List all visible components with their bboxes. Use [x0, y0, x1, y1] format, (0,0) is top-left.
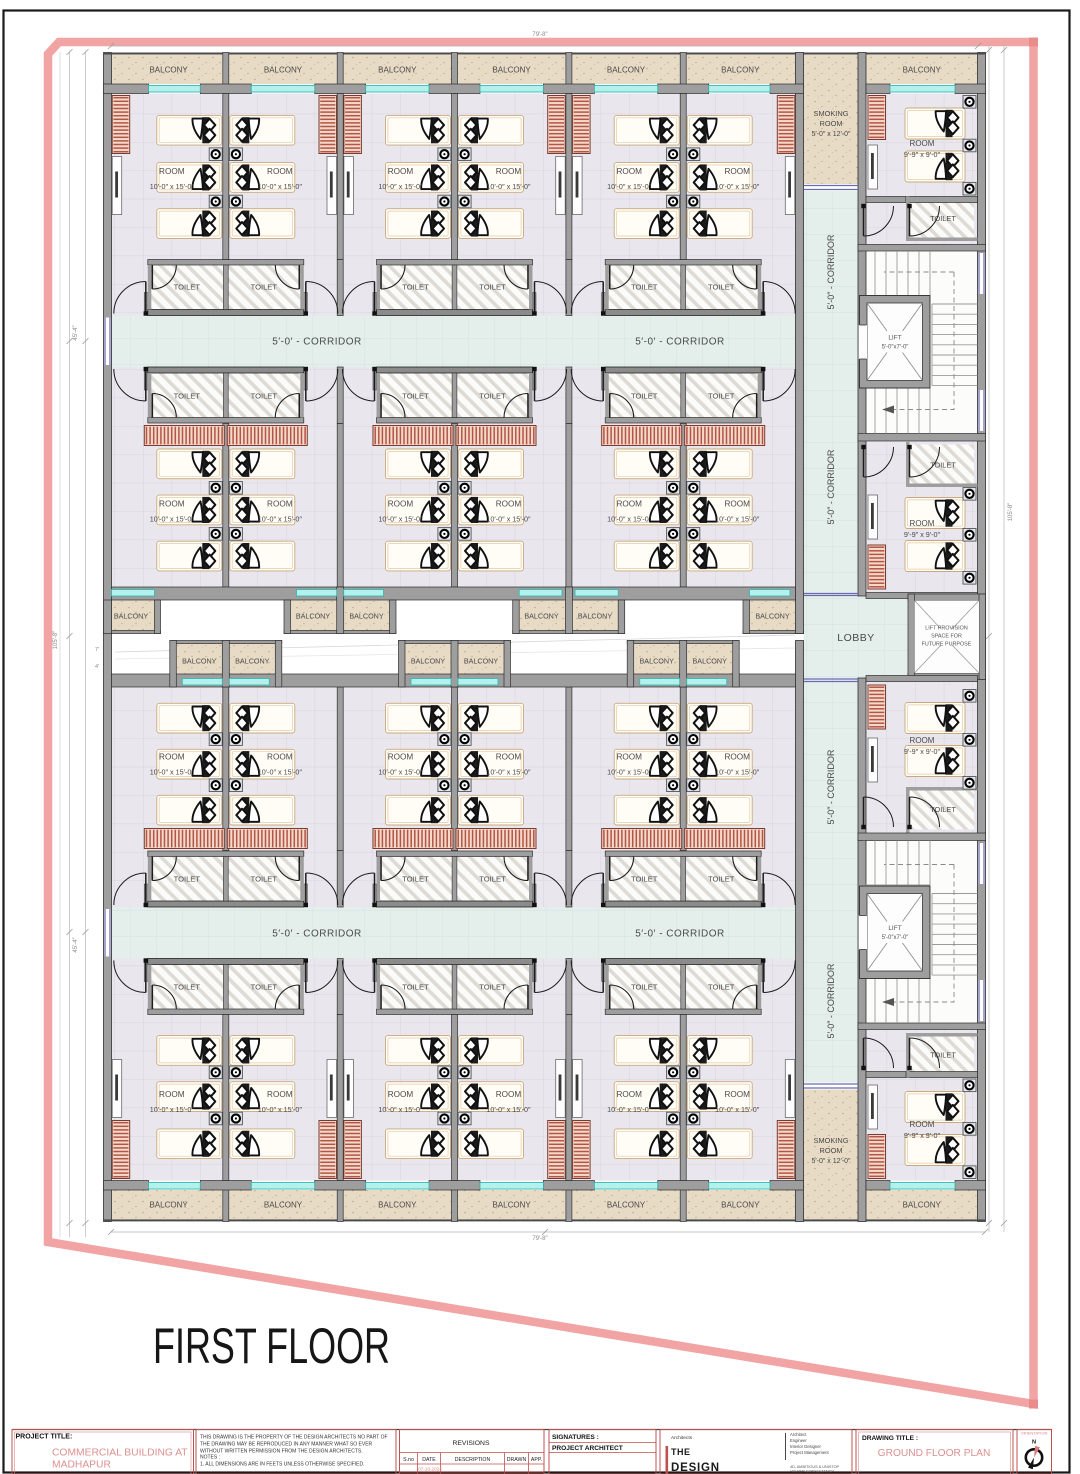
svg-text:TOILET: TOILET [708, 875, 735, 884]
svg-text:5′-0″ x 12′-0″: 5′-0″ x 12′-0″ [811, 1158, 851, 1165]
svg-text:ROOM: ROOM [496, 167, 522, 176]
svg-text:5′-0″ x 12′-0″: 5′-0″ x 12′-0″ [811, 131, 851, 138]
svg-text:FIRST FLOOR: FIRST FLOOR [153, 1318, 390, 1374]
svg-text:TOILET: TOILET [930, 461, 956, 470]
svg-text:DATE: DATE [422, 1457, 436, 1463]
svg-text:ROOM: ROOM [388, 167, 414, 176]
svg-text:ROOM: ROOM [496, 1090, 522, 1099]
svg-text:Project Management: Project Management [790, 1450, 829, 1455]
svg-text:ROOM: ROOM [388, 753, 414, 762]
svg-text:79′-8″: 79′-8″ [532, 32, 548, 38]
svg-text:BALCONY: BALCONY [755, 612, 790, 621]
svg-text:TOILET: TOILET [402, 983, 429, 992]
svg-text:SMOKING: SMOKING [814, 109, 849, 118]
svg-text:10′-0″ x 15′-0″: 10′-0″ x 15′-0″ [607, 1105, 652, 1114]
svg-text:S.no: S.no [403, 1457, 414, 1463]
svg-text:TOILET: TOILET [402, 875, 429, 884]
svg-text:ROOM: ROOM [910, 139, 935, 148]
svg-text:ROOM: ROOM [820, 1146, 843, 1155]
svg-text:BALCONY: BALCONY [264, 1201, 303, 1210]
svg-text:TOILET: TOILET [251, 983, 278, 992]
svg-text:9′-9″ x 9′-0″: 9′-9″ x 9′-0″ [904, 150, 941, 159]
svg-text:Architects: Architects [671, 1435, 693, 1441]
svg-text:BALCONY: BALCONY [693, 657, 728, 666]
svg-text:TOILET: TOILET [631, 392, 658, 401]
svg-text:5′-0′ - CORRIDOR: 5′-0′ - CORRIDOR [635, 929, 725, 940]
svg-text:TOILET: TOILET [251, 392, 278, 401]
svg-text:BALCONY: BALCONY [903, 1201, 942, 1210]
svg-text:4D, AMBITIOUS & UNISTOP: 4D, AMBITIOUS & UNISTOP [790, 1465, 840, 1469]
svg-text:10′-0″ x 15′-0″: 10′-0″ x 15′-0″ [607, 768, 652, 777]
svg-text:10′-0″ x 15′-0″: 10′-0″ x 15′-0″ [378, 515, 423, 524]
svg-text:10′-0″ x 15′-0″: 10′-0″ x 15′-0″ [258, 768, 303, 777]
svg-text:79′-8″: 79′-8″ [532, 1236, 548, 1242]
svg-text:BALCONY: BALCONY [721, 1201, 760, 1210]
svg-text:ROOM: ROOM [616, 1090, 642, 1099]
svg-text:ROOM: ROOM [267, 1090, 293, 1099]
svg-text:TOILET: TOILET [479, 983, 506, 992]
svg-text:105′-8″: 105′-8″ [1008, 502, 1014, 521]
svg-text:FUTURE PURPOSE: FUTURE PURPOSE [922, 642, 972, 648]
svg-text:THIS DRAWING IS THE PROPERTY O: THIS DRAWING IS THE PROPERTY OF THE DESI… [200, 1435, 388, 1441]
svg-text:5′-0″x7′-0″: 5′-0″x7′-0″ [882, 345, 910, 351]
svg-text:5′-0″ - CORRIDOR: 5′-0″ - CORRIDOR [826, 449, 836, 524]
svg-text:BALCONY: BALCONY [524, 612, 559, 621]
svg-text:TOILET: TOILET [708, 283, 735, 292]
svg-text:10′-0″ x 15′-0″: 10′-0″ x 15′-0″ [150, 182, 195, 191]
svg-text:10′-0″ x 15′-0″: 10′-0″ x 15′-0″ [150, 768, 195, 777]
svg-text:BALCONY: BALCONY [149, 66, 188, 75]
svg-text:5′-0″ - CORRIDOR: 5′-0″ - CORRIDOR [826, 963, 836, 1038]
svg-text:LIFT PROVISION: LIFT PROVISION [925, 626, 968, 632]
svg-text:DESIGN: DESIGN [671, 1462, 720, 1474]
svg-text:Engineer: Engineer [790, 1438, 807, 1443]
svg-text:45′-4″: 45′-4″ [73, 936, 79, 952]
svg-text:ROOM: ROOM [820, 119, 843, 128]
svg-text:PROJECT TITLE:: PROJECT TITLE: [16, 1434, 73, 1441]
svg-text:Interior Designer: Interior Designer [790, 1444, 822, 1449]
svg-text:THE: THE [671, 1447, 691, 1457]
svg-text:105′-8″: 105′-8″ [53, 630, 59, 649]
svg-text:ROOM: ROOM [616, 500, 642, 509]
svg-text:BALCONY: BALCONY [607, 1201, 646, 1210]
svg-text:10′-0″ x 15′-0″: 10′-0″ x 15′-0″ [607, 515, 652, 524]
svg-text:PROJECT ARCHITECT: PROJECT ARCHITECT [552, 1445, 623, 1452]
svg-text:10′-0″ x 15′-0″: 10′-0″ x 15′-0″ [258, 1105, 303, 1114]
svg-text:DRAWN: DRAWN [507, 1457, 527, 1463]
svg-text:ROOM: ROOM [724, 167, 750, 176]
svg-text:ROOM: ROOM [159, 500, 185, 509]
svg-text:TOILET: TOILET [479, 283, 506, 292]
svg-text:BALCONY: BALCONY [464, 657, 499, 666]
svg-text:TOILET: TOILET [174, 283, 201, 292]
svg-text:TOILET: TOILET [174, 392, 201, 401]
svg-text:SIGNATURES :: SIGNATURES : [552, 1434, 599, 1441]
svg-text:5′-0″x7′-0″: 5′-0″x7′-0″ [882, 935, 910, 941]
svg-text:ROOM: ROOM [724, 1090, 750, 1099]
svg-text:ROOM: ROOM [159, 167, 185, 176]
svg-text:9′-9″ x 9′-0″: 9′-9″ x 9′-0″ [904, 530, 941, 539]
svg-text:10′-0″ x 15′-0″: 10′-0″ x 15′-0″ [378, 182, 423, 191]
svg-text:4′: 4′ [95, 664, 99, 670]
svg-text:TOILET: TOILET [479, 875, 506, 884]
svg-text:7′: 7′ [95, 647, 99, 653]
svg-text:REVISIONS: REVISIONS [452, 1440, 489, 1447]
svg-text:GROUND FLOOR PLAN: GROUND FLOOR PLAN [878, 1448, 991, 1459]
svg-text:ROOM: ROOM [496, 753, 522, 762]
svg-text:BALCONY: BALCONY [378, 66, 417, 75]
svg-text:ROOM: ROOM [388, 1090, 414, 1099]
svg-text:BALCONY: BALCONY [607, 66, 646, 75]
svg-text:9′-9″ x 9′-0″: 9′-9″ x 9′-0″ [904, 747, 941, 756]
svg-text:BALCONY: BALCONY [578, 612, 613, 621]
svg-text:TOILET: TOILET [402, 392, 429, 401]
svg-text:MADHAPUR: MADHAPUR [52, 1460, 111, 1471]
svg-text:HIGHER CONSULTANCY: HIGHER CONSULTANCY [790, 1470, 834, 1474]
svg-text:BALCONY: BALCONY [492, 1201, 531, 1210]
svg-text:BALCONY: BALCONY [411, 657, 446, 666]
svg-text:ROOM: ROOM [910, 519, 935, 528]
svg-text:10′-0″ x 15′-0″: 10′-0″ x 15′-0″ [486, 1105, 531, 1114]
svg-text:BALCONY: BALCONY [235, 657, 270, 666]
svg-text:TOILET: TOILET [251, 283, 278, 292]
svg-text:BALCONY: BALCONY [721, 66, 760, 75]
svg-text:10′-0″ x 15′-0″: 10′-0″ x 15′-0″ [715, 768, 760, 777]
svg-text:LOBBY: LOBBY [837, 632, 875, 644]
svg-text:ROOM: ROOM [724, 753, 750, 762]
svg-text:BALCONY: BALCONY [640, 657, 675, 666]
svg-text:ROOM: ROOM [496, 500, 522, 509]
svg-text:BALCONY: BALCONY [264, 66, 303, 75]
svg-text:DESCRIPTION: DESCRIPTION [455, 1457, 491, 1463]
svg-text:ROOM: ROOM [267, 753, 293, 762]
svg-text:10′-0″ x 15′-0″: 10′-0″ x 15′-0″ [486, 768, 531, 777]
svg-text:BALCONY: BALCONY [349, 612, 384, 621]
svg-text:TOILET: TOILET [708, 983, 735, 992]
svg-text:TOILET: TOILET [930, 805, 956, 814]
svg-text:ORIENTATION: ORIENTATION [1021, 1431, 1048, 1436]
svg-text:10′-0″ x 15′-0″: 10′-0″ x 15′-0″ [150, 1105, 195, 1114]
svg-text:BALCONY: BALCONY [296, 612, 331, 621]
svg-text:ROOM: ROOM [616, 167, 642, 176]
svg-text:LIFT: LIFT [888, 335, 901, 342]
svg-text:BALCONY: BALCONY [492, 66, 531, 75]
svg-text:APP.: APP. [531, 1457, 542, 1463]
svg-text:07-10-2024: 07-10-2024 [418, 1467, 442, 1472]
svg-text:TOILET: TOILET [479, 392, 506, 401]
svg-text:BALCONY: BALCONY [114, 612, 149, 621]
svg-text:ROOM: ROOM [159, 753, 185, 762]
svg-text:SPACE FOR: SPACE FOR [931, 634, 962, 640]
svg-text:5′-0′ - CORRIDOR: 5′-0′ - CORRIDOR [635, 337, 725, 348]
svg-text:BALCONY: BALCONY [378, 1201, 417, 1210]
svg-text:ROOM: ROOM [159, 1090, 185, 1099]
svg-text:TOILET: TOILET [402, 283, 429, 292]
svg-text:5′-0′ - CORRIDOR: 5′-0′ - CORRIDOR [272, 337, 362, 348]
svg-text:Architect: Architect [790, 1432, 807, 1437]
svg-text:DRAWING TITLE :: DRAWING TITLE : [862, 1435, 918, 1442]
svg-text:10′-0″ x 15′-0″: 10′-0″ x 15′-0″ [378, 1105, 423, 1114]
svg-text:1. ALL DIMENSIONS ARE IN FEETS: 1. ALL DIMENSIONS ARE IN FEETS UNLESS OT… [200, 1462, 365, 1468]
svg-text:5′-0′ - CORRIDOR: 5′-0′ - CORRIDOR [272, 929, 362, 940]
svg-text:TOILET: TOILET [174, 983, 201, 992]
svg-text:ROOM: ROOM [616, 753, 642, 762]
svg-text:ROOM: ROOM [388, 500, 414, 509]
svg-text:TOILET: TOILET [631, 983, 658, 992]
svg-text:ROOM: ROOM [267, 500, 293, 509]
svg-text:9′-9″ x 9′-0″: 9′-9″ x 9′-0″ [904, 1131, 941, 1140]
svg-text:45′-4″: 45′-4″ [73, 324, 79, 340]
svg-text:10′-0″ x 15′-0″: 10′-0″ x 15′-0″ [715, 1105, 760, 1114]
svg-text:BALCONY: BALCONY [903, 66, 942, 75]
svg-text:TOILET: TOILET [930, 1051, 956, 1060]
svg-text:WITHOUT WRITTEN PERMISSION FRO: WITHOUT WRITTEN PERMISSION FROM THE DESI… [200, 1449, 363, 1455]
svg-text:10′-0″ x 15′-0″: 10′-0″ x 15′-0″ [607, 182, 652, 191]
svg-text:ROOM: ROOM [910, 1120, 935, 1129]
svg-text:COMMERCIAL BUILDING AT: COMMERCIAL BUILDING AT [52, 1448, 188, 1459]
svg-text:TOILET: TOILET [930, 214, 956, 223]
svg-text:TOILET: TOILET [708, 392, 735, 401]
svg-text:TOILET: TOILET [631, 875, 658, 884]
svg-text:TOILET: TOILET [631, 283, 658, 292]
svg-text:LIFT: LIFT [888, 925, 901, 932]
svg-text:10′-0″ x 15′-0″: 10′-0″ x 15′-0″ [486, 182, 531, 191]
svg-text:10′-0″ x 15′-0″: 10′-0″ x 15′-0″ [378, 768, 423, 777]
svg-text:BALCONY: BALCONY [182, 657, 217, 666]
svg-text:10′-0″ x 15′-0″: 10′-0″ x 15′-0″ [150, 515, 195, 524]
svg-text:10′-0″ x 15′-0″: 10′-0″ x 15′-0″ [715, 182, 760, 191]
svg-text:5′-0″ - CORRIDOR: 5′-0″ - CORRIDOR [826, 749, 836, 824]
svg-text:BALCONY: BALCONY [149, 1201, 188, 1210]
svg-text:ROOM: ROOM [910, 736, 935, 745]
svg-text:N: N [1032, 1440, 1036, 1446]
svg-text:10′-0″ x 15′-0″: 10′-0″ x 15′-0″ [486, 515, 531, 524]
svg-text:5′-0″ - CORRIDOR: 5′-0″ - CORRIDOR [826, 234, 836, 309]
svg-text:10′-0″ x 15′-0″: 10′-0″ x 15′-0″ [258, 515, 303, 524]
svg-text:NOTES :: NOTES : [200, 1455, 220, 1461]
svg-text:ROOM: ROOM [724, 500, 750, 509]
svg-text:THE DRAWING MAY BE REPRODUCED: THE DRAWING MAY BE REPRODUCED IN ANY MAN… [200, 1442, 373, 1448]
svg-text:TOILET: TOILET [174, 875, 201, 884]
svg-text:SMOKING: SMOKING [814, 1136, 849, 1145]
svg-text:10′-0″ x 15′-0″: 10′-0″ x 15′-0″ [715, 515, 760, 524]
svg-text:ROOM: ROOM [267, 167, 293, 176]
svg-text:TOILET: TOILET [251, 875, 278, 884]
svg-text:10′-0″ x 15′-0″: 10′-0″ x 15′-0″ [258, 182, 303, 191]
